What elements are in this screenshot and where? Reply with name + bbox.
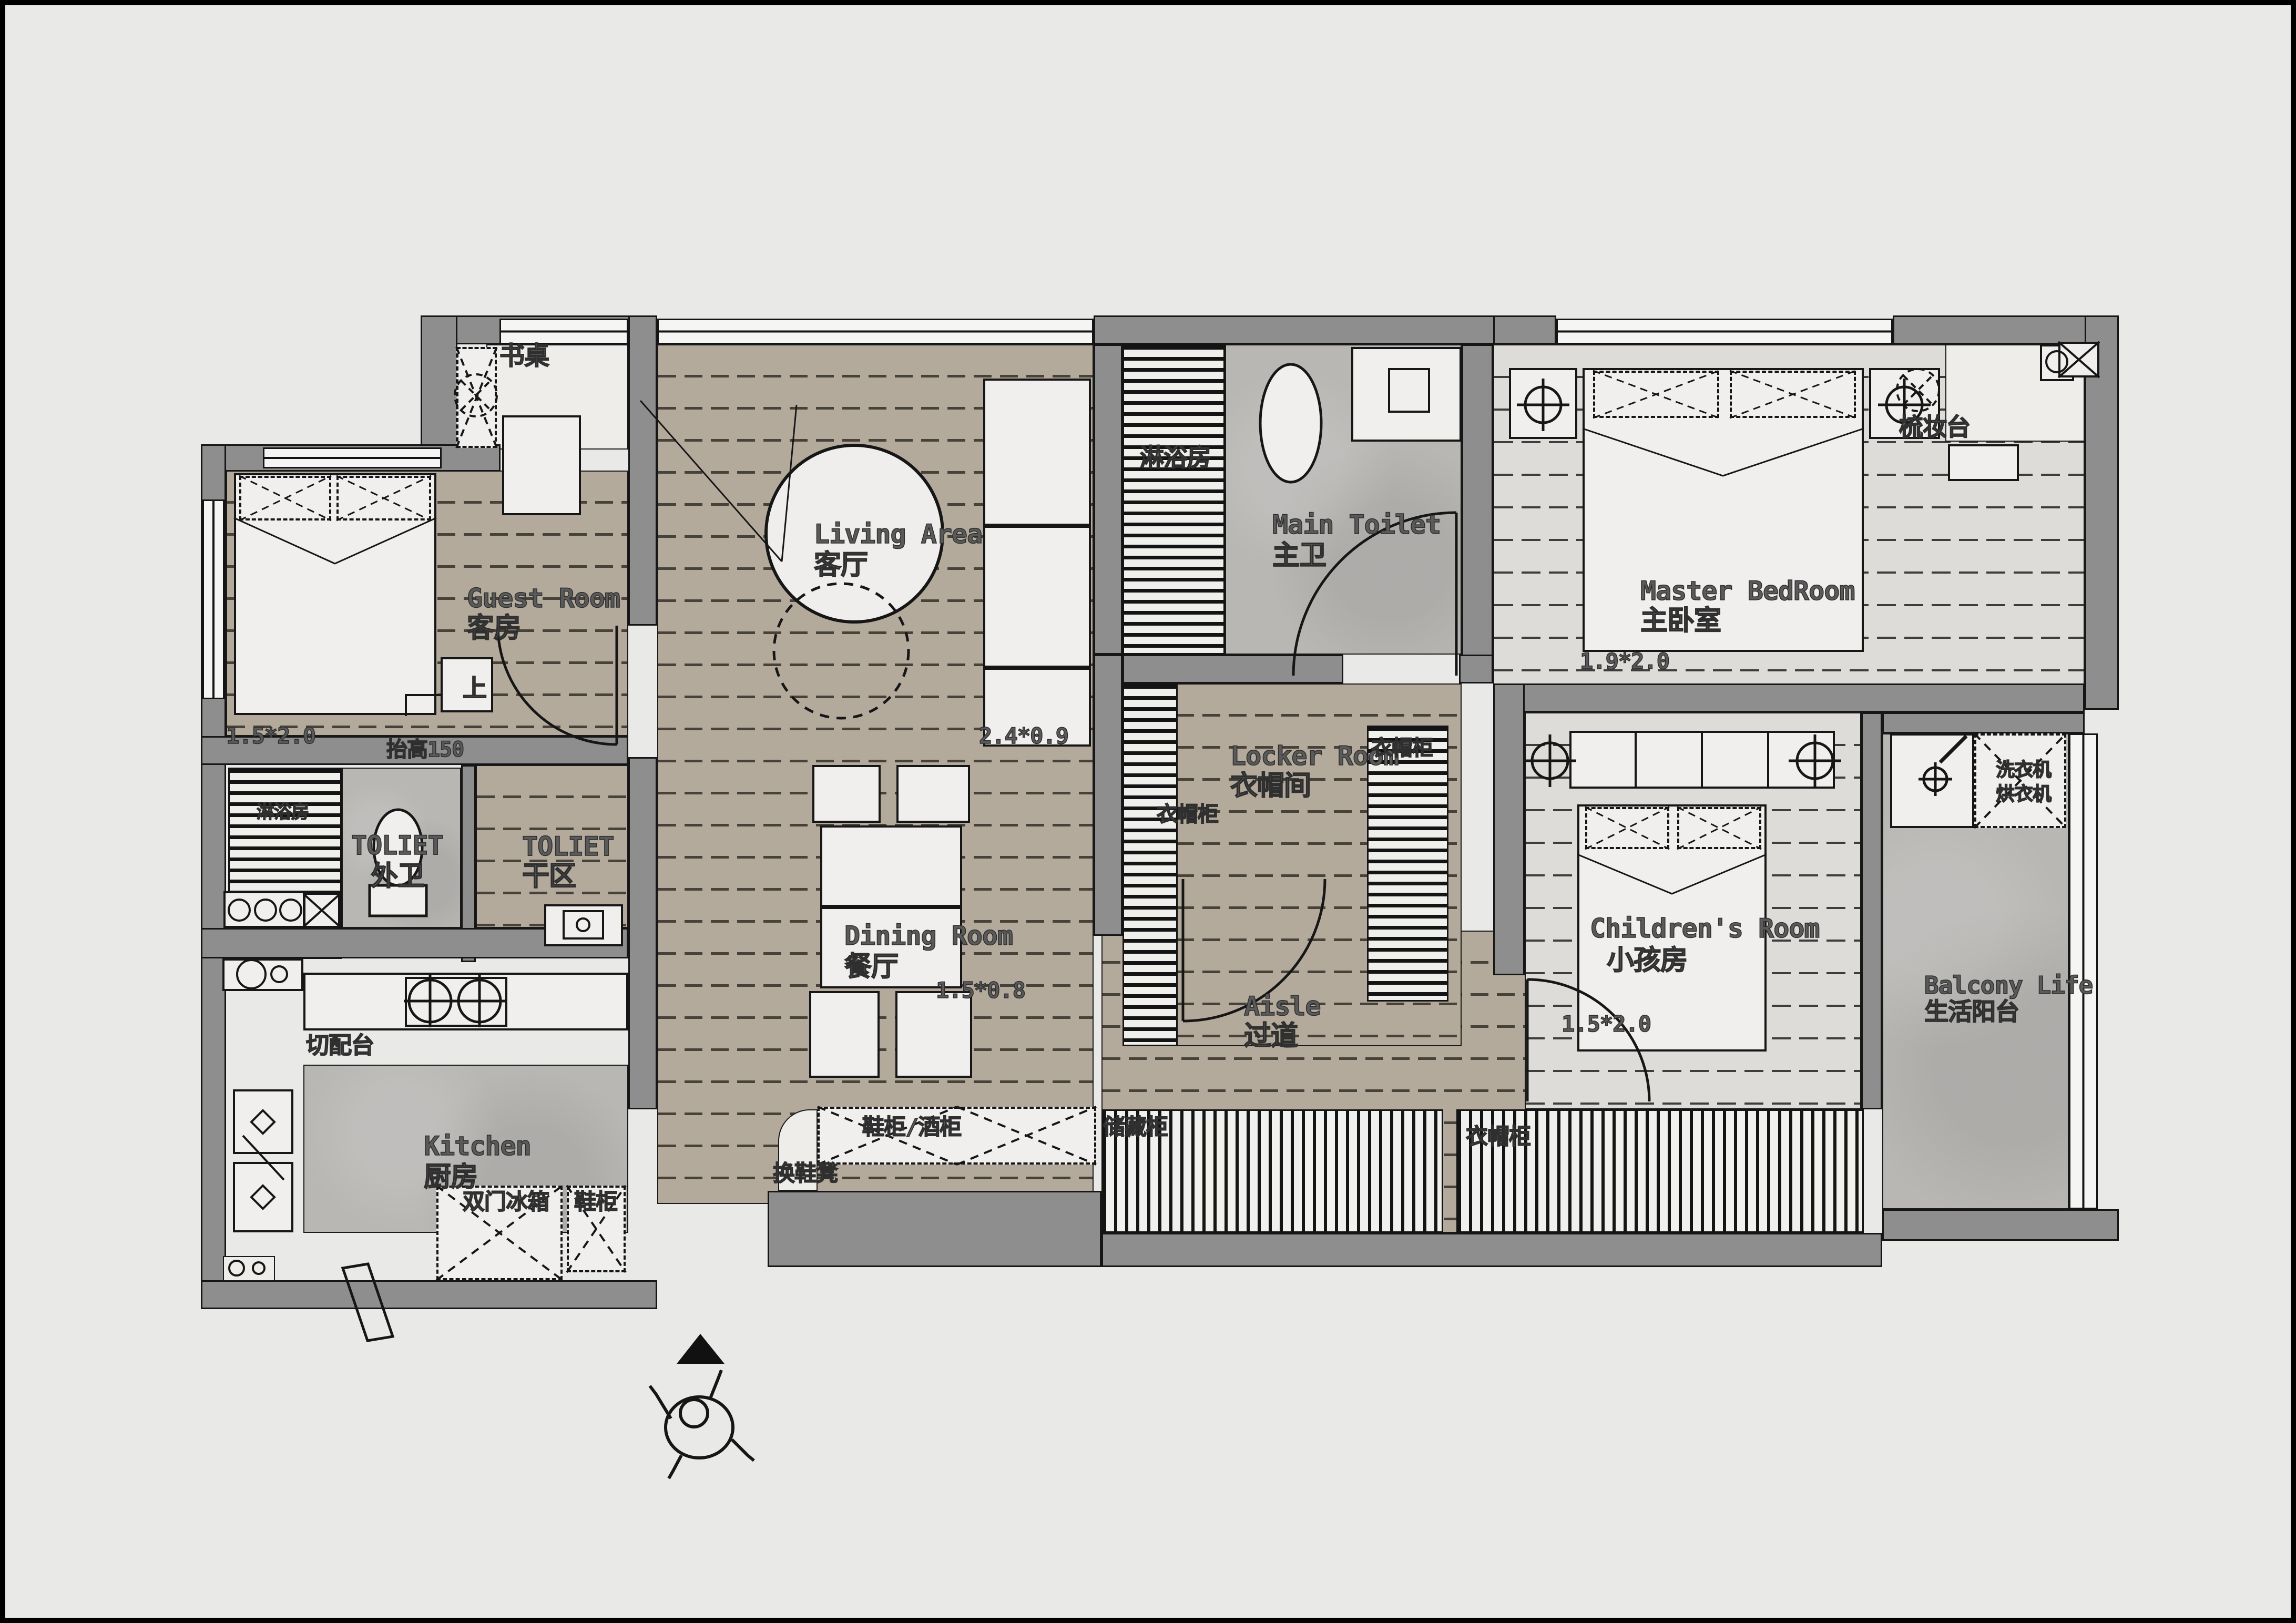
main-toilet-label-zh: 主卫 xyxy=(1272,542,1326,570)
dry-sink-basin xyxy=(564,911,603,938)
children-headboard-dividers xyxy=(1636,731,1768,789)
wardrobe-left-label: 衣帽柜 xyxy=(1157,803,1218,825)
children-room-label-zh: 小孩房 xyxy=(1607,946,1687,975)
outer-toilet-label-en: TOLIET xyxy=(351,832,443,860)
shower-room-front-label: 淋浴房 xyxy=(257,803,309,822)
dining-room-label-en: Dining Room xyxy=(844,922,1013,950)
kitchen-label-zh: 厨房 xyxy=(424,1163,477,1192)
guest-room-label-en: Guest Room xyxy=(467,585,620,613)
shoe-cabinet-label: 鞋柜 xyxy=(574,1190,617,1213)
living-area-label-zh: 客厅 xyxy=(814,551,868,580)
gas-hob-circles xyxy=(229,1261,264,1275)
vanity-shaft-x xyxy=(303,894,340,927)
vanity-basin-circles xyxy=(229,900,301,921)
bathtub xyxy=(1260,364,1321,482)
dryer-label: 烘衣机 xyxy=(1996,784,2051,804)
children-room-label-en: Children's Room xyxy=(1590,915,1820,943)
prep-counter-label: 切配台 xyxy=(306,1034,374,1058)
step-up-arrow xyxy=(406,695,441,716)
fridge-label: 双门冰箱 xyxy=(463,1190,549,1213)
master-bedroom-label-zh: 主卧室 xyxy=(1640,607,1721,636)
dining-room-label-zh: 餐厅 xyxy=(844,953,898,982)
corner-window-x xyxy=(2058,342,2099,377)
shoe-bench-label: 换鞋凳 xyxy=(773,1162,838,1185)
dining-table-dim: 1.5*0.8 xyxy=(936,979,1025,1002)
plan-linework xyxy=(0,0,2296,1623)
door-arc-children xyxy=(1527,979,1649,1101)
dressing-appliance-circle xyxy=(2046,351,2067,372)
floor-plan: Guest Room 客房 1.5*2.0 Living Area 客厅 2.4… xyxy=(0,0,2296,1623)
kitchen-cabinet-diamonds xyxy=(243,1110,284,1209)
dry-area-label-en: TOLIET xyxy=(522,833,614,861)
guest-bed-dim: 1.5*2.0 xyxy=(226,724,315,748)
mop-faucet xyxy=(1940,736,1966,762)
guest-room-label-zh: 客房 xyxy=(467,614,521,643)
washer-label: 洗衣机 xyxy=(1996,760,2051,780)
kitchen-sink-circles xyxy=(237,960,287,988)
outer-toilet-label-zh: 外卫 xyxy=(371,862,424,891)
wardrobe-mid-label: 衣帽柜 xyxy=(1371,737,1433,759)
master-bed-dim: 1.9*2.0 xyxy=(1580,650,1669,673)
tv-cabinet-dim: 2.4*0.9 xyxy=(979,724,1068,748)
shoe-wine-cabinet-label: 鞋柜/酒柜 xyxy=(862,1116,961,1139)
coat-cabinet-label: 衣帽柜 xyxy=(1466,1125,1530,1148)
person-figure xyxy=(650,1370,754,1478)
stove-burner-circles xyxy=(404,975,506,1027)
locker-room-label-zh: 衣帽间 xyxy=(1230,772,1311,801)
raised-150-label: 抬高150 xyxy=(386,739,464,761)
step-up-label: 上 xyxy=(463,676,486,701)
dressing-table-label: 梳妆台 xyxy=(1899,414,1970,440)
aisle-label-zh: 过道 xyxy=(1244,1022,1298,1051)
main-toilet-label-en: Main Toilet xyxy=(1272,511,1441,539)
desk-label: 书桌 xyxy=(499,343,549,369)
dry-area-label-zh: 干区 xyxy=(522,862,576,891)
aisle-label-en: Aisle xyxy=(1244,993,1321,1020)
kitchen-label-en: Kitchen xyxy=(424,1132,531,1160)
balcony-label-zh: 生活阳台 xyxy=(1924,999,2019,1024)
entrance-arrow xyxy=(677,1334,724,1364)
living-area-label-en: Living Area xyxy=(814,520,982,548)
shower-room-top-label: 淋浴房 xyxy=(1140,445,1211,470)
children-bed-dim: 1.5*2.0 xyxy=(1562,1013,1651,1036)
washer-x xyxy=(1974,733,2066,828)
storage-cabinet-label: 储藏柜 xyxy=(1103,1116,1168,1139)
kitchen-door-leaf xyxy=(343,1264,393,1341)
master-bedroom-label-en: Master BedRoom xyxy=(1640,577,1854,605)
balcony-label-en: Balcony Life xyxy=(1924,973,2093,998)
